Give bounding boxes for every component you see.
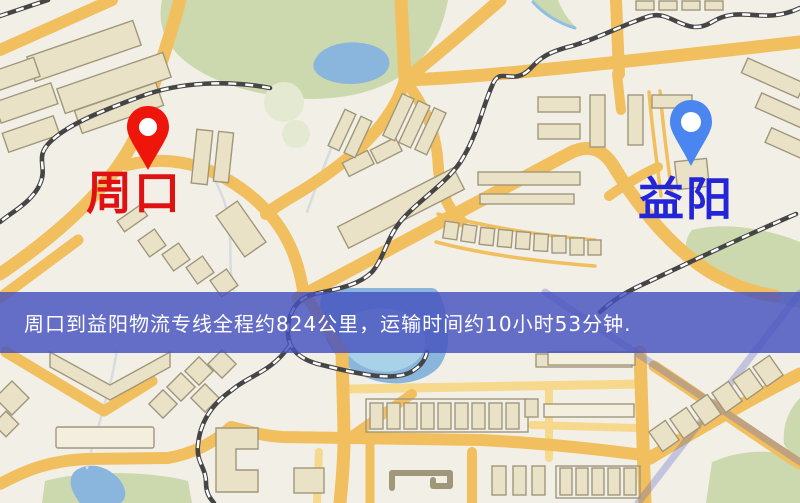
logistics-route-map: 周口 益阳 周口到益阳物流专线全程约824公里，运输时间约10小时53分钟. bbox=[0, 0, 800, 503]
origin-pin-shape bbox=[127, 106, 169, 170]
origin-pin[interactable] bbox=[124, 104, 172, 172]
destination-pin-hole bbox=[681, 112, 701, 132]
route-info-text: 周口到益阳物流专线全程约824公里，运输时间约10小时53分钟. bbox=[24, 308, 631, 337]
origin-pin-hole bbox=[139, 118, 157, 136]
origin-label: 周口 bbox=[86, 170, 182, 216]
destination-pin-shape bbox=[670, 100, 712, 166]
destination-label: 益阳 bbox=[638, 176, 734, 222]
destination-pin[interactable] bbox=[667, 98, 715, 168]
map-canvas bbox=[0, 0, 800, 503]
route-info-banner: 周口到益阳物流专线全程约824公里，运输时间约10小时53分钟. bbox=[0, 292, 800, 353]
